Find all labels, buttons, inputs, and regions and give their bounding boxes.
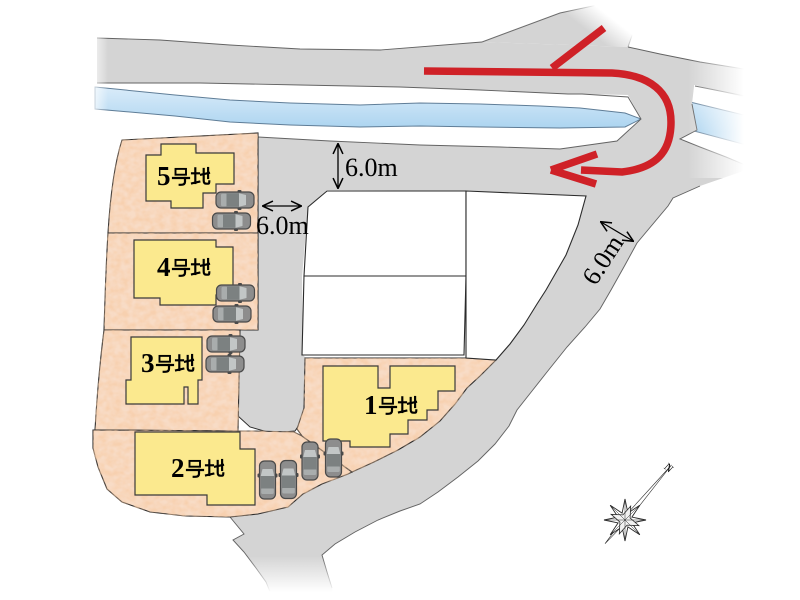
svg-text:6.0m: 6.0m (345, 153, 398, 182)
svg-text:5: 5 (157, 161, 171, 191)
svg-text:4: 4 (157, 252, 171, 282)
svg-text:2: 2 (171, 453, 185, 483)
svg-text:6.0m: 6.0m (256, 211, 309, 240)
svg-text:3: 3 (141, 348, 155, 378)
svg-text:1: 1 (364, 390, 378, 420)
